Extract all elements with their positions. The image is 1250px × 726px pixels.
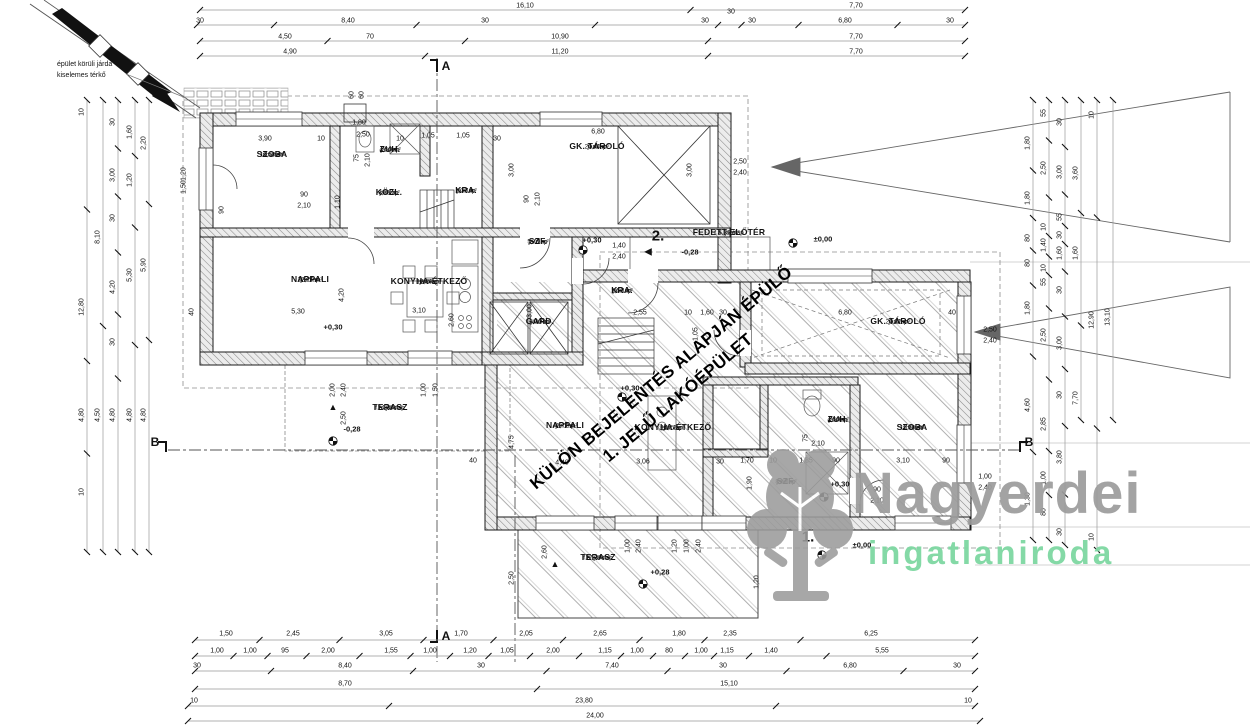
dimension-label: 30 — [110, 214, 117, 222]
dimension-label: 1,80 — [1025, 136, 1032, 150]
dimension-label: 40 — [948, 310, 956, 317]
dimension-label: 30 — [1057, 286, 1064, 294]
dimension-label: 7,70 — [849, 49, 863, 56]
dimension-label: 2,10 — [811, 441, 825, 448]
dimension-label: 1,40 — [764, 648, 778, 655]
dimension-label: 2,40 — [733, 170, 747, 177]
dimension-label: 1,20 — [672, 539, 679, 553]
room-detail: 4,50 m² — [379, 146, 400, 153]
dimension-label: 90 — [873, 487, 881, 494]
dimension-label: 4,80 — [141, 408, 148, 422]
floorplan-page: 16,107,70308,40303030306,80304,507010,90… — [0, 0, 1250, 726]
dimension-label: 2,40 — [612, 254, 626, 261]
benchmark-icon — [639, 580, 647, 588]
dimension-label: 30 — [477, 663, 485, 670]
level-mark: +0,28 — [651, 568, 670, 577]
dimension-label: 10,90 — [551, 34, 569, 41]
dimension-label: 3,06 — [636, 459, 650, 466]
dimension-label: 10 — [1041, 264, 1048, 272]
dimension-label: 4,60 — [1025, 398, 1032, 412]
dimension-label: 2,40 — [696, 539, 703, 553]
room-detail: 2,52 m² — [611, 287, 632, 294]
dimension-label: 6,80 — [838, 18, 852, 25]
dimension-label: 30 — [493, 136, 501, 143]
dimension-label: 1,50 — [433, 383, 440, 397]
dimension-label: 2,55 — [633, 310, 647, 317]
dimension-label: 2,00 — [330, 383, 337, 397]
dimension-label: 16,10 — [516, 3, 534, 10]
dimension-label: 55 — [1057, 213, 1064, 221]
dimension-label: 24,00 — [586, 713, 604, 720]
north-arrow-icon — [30, 0, 200, 118]
dimension-label: 10 — [79, 488, 86, 496]
dimension-label: 3,80 — [1057, 450, 1064, 464]
dimension-label: 6,25 — [864, 631, 878, 638]
level-mark: -0,28 — [343, 425, 360, 434]
dimension-label: 2,35 — [723, 631, 737, 638]
dimension-label: 4,20 — [339, 288, 346, 302]
dimension-label: 1,50 — [219, 631, 233, 638]
level-mark: ±0,00 — [853, 541, 872, 550]
dimension-label: 10 — [769, 458, 777, 465]
dimension-label: 13,10 — [1105, 308, 1112, 326]
dimension-label: 70 — [366, 34, 374, 41]
dimension-label: 1,20 — [181, 167, 188, 181]
dimension-label: 3,10 — [412, 308, 426, 315]
dimension-label: 30 — [481, 18, 489, 25]
dimension-label: 10 — [1041, 223, 1048, 231]
dimension-label: 10 — [190, 698, 198, 705]
dimension-label: 2,50 — [509, 571, 516, 585]
dimension-label: 1,40 — [612, 243, 626, 250]
dimension-label: 80 — [1025, 259, 1032, 267]
dimension-label: 11,20 — [552, 49, 569, 56]
dimension-label: 5,30 — [127, 268, 134, 282]
dimension-label: 3,00 — [509, 163, 516, 177]
dimension-label: 2,50 — [356, 132, 370, 139]
dimension-label: 90 — [219, 206, 226, 214]
dimension-label: 2,50 — [733, 159, 747, 166]
dimension-label: 1,00 — [243, 648, 257, 655]
dimension-label: 4,90 — [283, 49, 297, 56]
dimension-label: 1,00 — [694, 648, 708, 655]
dimension-label: 1,60 — [700, 310, 714, 317]
dimension-label: 1,00 — [684, 539, 691, 553]
dimension-label: 2,40 — [983, 338, 997, 345]
dimension-label: 95 — [281, 648, 289, 655]
dimension-label: 60 — [359, 91, 366, 99]
dimension-label: 30 — [719, 663, 727, 670]
room-detail: 18,39 m² — [417, 278, 442, 285]
dimension-label: 7,70 — [1073, 391, 1080, 405]
dimension-label: 3,00 — [1057, 336, 1064, 350]
dimension-label: 5,55 — [875, 648, 889, 655]
pavement-note-line1: épület körüli járda — [57, 61, 112, 68]
dimension-label: 1,55 — [384, 648, 398, 655]
entrance-arrow-icon: ◀ — [644, 247, 652, 258]
dimension-label: 1,80 — [352, 120, 366, 127]
dimension-label: 1,05 — [500, 648, 514, 655]
dimension-label: 10 — [684, 310, 692, 317]
dimension-label: 1,80 — [1025, 191, 1032, 205]
dimension-label: 8,70 — [338, 681, 352, 688]
benchmark-icon — [789, 239, 797, 247]
dimension-label: 1,80 — [1025, 301, 1032, 315]
dimension-label: 1,90 — [747, 476, 754, 490]
benchmark-icon — [329, 437, 337, 445]
dimension-label: 2,00 — [546, 648, 560, 655]
room-detail: 3,88 m² — [378, 189, 399, 196]
dimension-label: 2,40 — [978, 485, 992, 492]
dimension-label: 30 — [1057, 118, 1064, 126]
dimension-label: 2,10 — [297, 203, 311, 210]
dimension-label: 8,10 — [95, 230, 102, 244]
room-detail: 17,39 m² — [586, 554, 611, 561]
dimension-label: 4,80 — [110, 408, 117, 422]
dimension-label: 1,00 — [423, 648, 437, 655]
dimension-label: 10 — [1089, 111, 1096, 119]
room-detail: 41,72 m² — [553, 422, 578, 429]
dimension-label: 30 — [748, 18, 756, 25]
level-mark: +0,30 — [583, 236, 602, 245]
room-detail: 20,22 m² — [886, 318, 911, 325]
dimension-label: 6,80 — [591, 129, 605, 136]
dimension-label: 2,00 — [321, 648, 335, 655]
dimension-label: 30 — [110, 338, 117, 346]
dimension-label: 10 — [317, 136, 325, 143]
benchmark-icon — [820, 493, 828, 501]
dimension-label: 30 — [193, 663, 201, 670]
dimension-label: 3,90 — [258, 136, 272, 143]
slope-triangle-icon: ▲ — [329, 402, 338, 412]
benchmark-icon — [579, 246, 587, 254]
dimension-label: 1,00 — [625, 539, 632, 553]
dimension-label: 1,70 — [740, 458, 754, 465]
dimension-label: 1,30 — [1025, 492, 1032, 506]
dimension-label: 3,10 — [896, 458, 910, 465]
dimension-label: 55 — [1041, 278, 1048, 286]
dimension-label: 2,10 — [365, 153, 372, 167]
dimension-label: 90 — [300, 192, 308, 199]
dimension-label: 2,50 — [1041, 161, 1048, 175]
dimension-label: 1,60 — [1057, 246, 1064, 260]
room-detail: 20,40 m² — [585, 143, 610, 150]
section-mark-b: B — [151, 435, 160, 449]
dimension-label: 1,00 — [630, 648, 644, 655]
dimension-label: 30 — [716, 459, 724, 466]
dimension-label: 2,40 — [341, 383, 348, 397]
dimension-label: 1,20 — [127, 173, 134, 187]
dimension-label: 12,80 — [79, 298, 86, 316]
benchmark-icon — [818, 551, 826, 559]
dimension-label: 40 — [469, 458, 477, 465]
dimension-label: 30 — [946, 18, 954, 25]
section-mark-a: A — [442, 629, 451, 643]
dimension-label: 1,00 — [1041, 471, 1048, 485]
dimension-label: 30 — [701, 18, 709, 25]
pavement-note: épület körüli járda kiselemes térkő — [57, 60, 112, 81]
dimension-label: 2,50 — [983, 327, 997, 334]
dimension-label: 12,90 — [1089, 311, 1096, 329]
dimension-label: 3,00 — [687, 163, 694, 177]
level-mark: +0,30 — [324, 323, 343, 332]
section-mark-a: A — [442, 59, 451, 73]
dimension-label: 4,20 — [110, 280, 117, 294]
dimension-label: 80 — [1025, 234, 1032, 242]
room-detail: 6,30 m² — [529, 318, 550, 325]
dimension-label: 1,00 — [421, 383, 428, 397]
dimension-label: 3,00 — [110, 168, 117, 182]
dimension-label: 55 — [1041, 109, 1048, 117]
dimension-label: 5,90 — [141, 258, 148, 272]
dimension-label: 2,20 — [141, 136, 148, 150]
dimension-label: 4,75 — [509, 435, 516, 449]
dimension-label: 7,40 — [605, 663, 619, 670]
dimension-label: 1,10 — [335, 195, 342, 209]
dimension-label: 2,60 — [449, 313, 456, 327]
dimension-label: 10 — [396, 136, 404, 143]
dimension-label: 30 — [1057, 231, 1064, 239]
dimension-label: 2,50 — [341, 411, 348, 425]
room-detail: 8,67 m² — [775, 478, 796, 485]
dimension-label: 1,50 — [181, 180, 188, 194]
level-mark: -0,28 — [681, 248, 698, 257]
dimension-label: 30 — [727, 9, 735, 16]
dimension-label: 40 — [189, 308, 196, 316]
room-detail: 11,76 m² — [900, 424, 924, 431]
dimension-label: 1,00 — [978, 474, 992, 481]
dimension-label: 6,80 — [838, 310, 852, 317]
dimension-label: 75 — [803, 434, 810, 442]
dimension-label: 2,65 — [593, 631, 607, 638]
dimension-label: 2,10 — [870, 498, 884, 505]
dimension-label: 1,85 — [799, 458, 813, 465]
dimension-label: 1,70 — [454, 631, 468, 638]
dimension-label: 2,50 — [1041, 328, 1048, 342]
dimension-label: 1,00 — [210, 648, 224, 655]
dimension-label: 1,20 — [463, 648, 477, 655]
room-detail: 10,50 m² — [260, 151, 285, 158]
slope-triangle-icon: ▲ — [551, 559, 560, 569]
dimension-label: 2,45 — [286, 631, 300, 638]
dimension-label: 1,20 — [754, 575, 761, 589]
dimension-label: 4,50 — [278, 34, 292, 41]
dimension-label: 3,05 — [379, 631, 393, 638]
dimension-label: 1,15 — [598, 648, 612, 655]
room-detail: 5,70 m² — [527, 238, 548, 245]
building-number-1: 1. — [802, 529, 815, 546]
dimension-label: 2,10 — [535, 192, 542, 206]
dimension-label: 90 — [832, 458, 840, 465]
dimension-label: 80 — [665, 648, 673, 655]
dimension-label: 30 — [1057, 391, 1064, 399]
dimension-label: 1,05 — [456, 133, 470, 140]
dimension-label: 10 — [79, 108, 86, 116]
dimension-label: 75 — [354, 154, 361, 162]
dimension-label: 30 — [196, 18, 204, 25]
level-mark: +0,30 — [831, 480, 850, 489]
dimension-label: 1,15 — [720, 648, 734, 655]
dimension-label: 2,60 — [542, 545, 549, 559]
dimension-label: 10 — [964, 698, 972, 705]
dimension-label: 4,50 — [95, 408, 102, 422]
dimension-label: 2,40 — [636, 539, 643, 553]
dimension-label: 3,60 — [1073, 166, 1080, 180]
dimension-label: 2,85 — [1041, 417, 1048, 431]
room-detail: 4,50 m² — [827, 416, 848, 423]
dimension-label: 1,05 — [421, 133, 435, 140]
dimension-label: 30 — [953, 663, 961, 670]
dimension-label: 8,40 — [338, 663, 352, 670]
section-mark-b: B — [1025, 435, 1034, 449]
room-detail: 22,26 m² — [298, 276, 323, 283]
dimension-label: 1,40 — [1041, 238, 1048, 252]
dimension-label: 15,10 — [720, 681, 738, 688]
dimension-label: 5,30 — [291, 309, 305, 316]
dimension-label: 4,80 — [127, 408, 134, 422]
dimension-label: 1,60 — [127, 125, 134, 139]
dimension-label: 10 — [1089, 533, 1096, 541]
dimension-label: 30 — [1057, 528, 1064, 536]
pavement-note-line2: kiselemes térkő — [57, 72, 106, 79]
dimension-label: 4,80 — [79, 408, 86, 422]
dimension-label: 30 — [110, 118, 117, 126]
building-number-2: 2. — [652, 228, 665, 245]
dimension-label: 7,70 — [849, 34, 863, 41]
dimension-label: 2,05 — [519, 631, 533, 638]
dimension-label: 23,80 — [575, 698, 593, 705]
dimension-label: 80 — [1041, 508, 1048, 516]
dimension-label: 8,40 — [341, 18, 355, 25]
dimension-label: 3,00 — [1057, 165, 1064, 179]
room-detail: 1,37 m² — [455, 187, 476, 194]
dimension-label: 1,80 — [672, 631, 686, 638]
room-detail: 5,32 m² — [718, 229, 739, 236]
dimension-label: 7,70 — [849, 3, 863, 10]
room-detail: 14,88 m² — [378, 404, 403, 411]
dimension-label: 90 — [524, 195, 531, 203]
dimension-label: 1,60 — [1073, 246, 1080, 260]
floorplan-drawing — [0, 0, 1250, 726]
dimension-label: 90 — [942, 458, 950, 465]
dimension-label: 6,80 — [843, 663, 857, 670]
dimension-label: 60 — [349, 91, 356, 99]
